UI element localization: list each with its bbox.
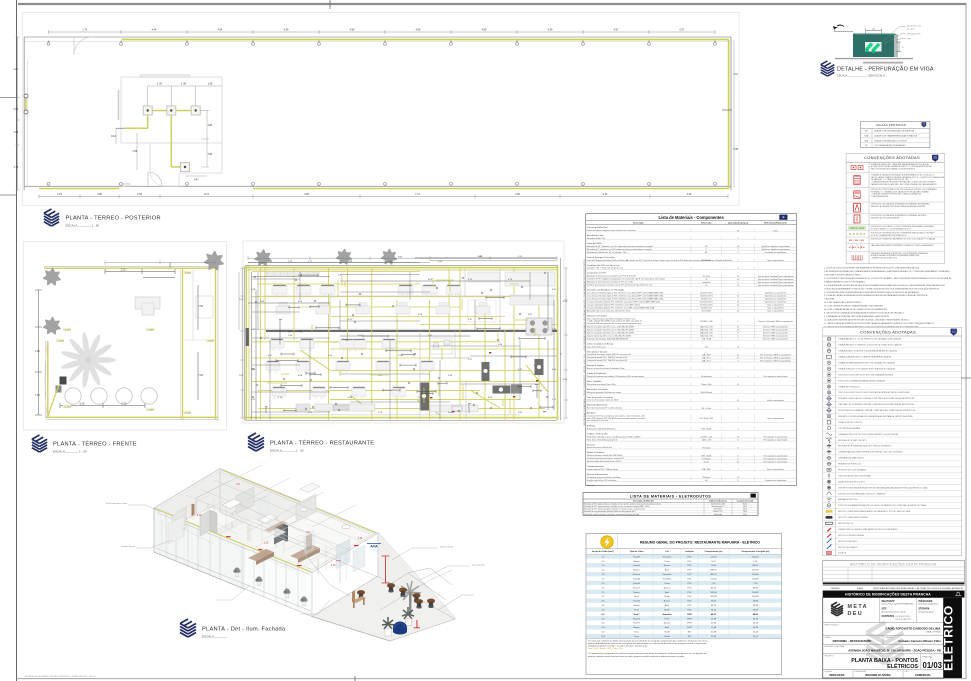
- svg-text:PLANTA - Det - Ilum. Fachada: PLANTA - Det - Ilum. Fachada: [202, 627, 286, 633]
- svg-text:Diâmetro Nominal: Diâmetro Nominal: [709, 499, 727, 502]
- svg-text:PLANTA - TÉRREO - POSTERIOR: PLANTA - TÉRREO - POSTERIOR: [66, 215, 161, 222]
- svg-text:Dispositivo DR tetrapolar 40A: Dispositivo DR tetrapolar 40A 30mA, NBR …: [587, 337, 628, 340]
- svg-text:Tomadas Industriais: Tomadas Industriais: [587, 465, 604, 468]
- svg-text:EPR: EPR: [687, 614, 692, 616]
- svg-text:Luva para eletroduto rígido de: Luva para eletroduto rígido de PVC, 25x2…: [587, 304, 640, 307]
- svg-text:DO SOLO (SOBREFORRO EM CIMA SO: DO SOLO (SOBREFORRO EM CIMA SOLO).: [871, 234, 907, 237]
- svg-text:PVC: PVC: [687, 592, 692, 594]
- svg-text:Neutro: Neutro: [633, 591, 640, 594]
- svg-text:Seção do Cabo (mm²): Seção do Cabo (mm²): [592, 550, 614, 553]
- svg-text:Adaptador de Derivação para Co: Adaptador de Derivação para Condulete de…: [587, 281, 633, 284]
- svg-text:PVC: PVC: [687, 596, 692, 598]
- svg-text:FOGÃO A: FOGÃO A: [838, 552, 847, 555]
- svg-text:21,98: 21,98: [711, 636, 717, 638]
- svg-text:PVC: PVC: [687, 587, 692, 589]
- svg-text:Arandelas: Arandelas: [587, 412, 596, 415]
- svg-text:refletor led 50w: refletor led 50w: [440, 546, 454, 549]
- svg-text:ESCALA______________ SEM ESCAL: ESCALA______________ SEM ESCALA: [837, 74, 885, 78]
- svg-text:3.10: 3.10: [518, 256, 523, 258]
- svg-text:WAGNER OLIVEIRA: WAGNER OLIVEIRA: [865, 673, 891, 677]
- svg-text:RESP. TÉCNICO: RESP. TÉCNICO: [825, 623, 840, 626]
- svg-text:1.45: 1.45: [157, 83, 162, 86]
- svg-text:Condulete de PVC múltiplo com: Condulete de PVC múltiplo com adaptações…: [587, 278, 665, 281]
- svg-text:PUXADOR DE TETO VELOSO: PUXADOR DE TETO VELOSO: [838, 421, 863, 424]
- svg-text:arandela externa: arandela externa: [121, 545, 136, 548]
- svg-text:0.97: 0.97: [680, 28, 685, 31]
- svg-text:2.84: 2.84: [448, 375, 453, 377]
- svg-text:Terra: Terra: [634, 635, 640, 638]
- svg-text:Refletor LED 50W 6500K IP66 bi: Refletor LED 50W 6500K IP66 bivolt: [587, 427, 616, 430]
- svg-text:Fase/S: Fase/S: [633, 565, 640, 567]
- svg-text:PVC: PVC: [687, 574, 692, 576]
- svg-text:Tomada industrial 2P+T 32A com: Tomada industrial 2P+T 32A com tampa: [587, 468, 618, 471]
- svg-text:Fonte driver 12V 100W para fit: Fonte driver 12V 100W para fita de led: [587, 438, 617, 441]
- svg-text:ELETRODUTO DE ALIMENTAÇÃO SUB-: ELETRODUTO DE ALIMENTAÇÃO SUB-SOLO + PAR…: [838, 492, 886, 495]
- svg-text:ELETRODUTO EMBUTIDO NA PAREDE: ELETRODUTO EMBUTIDO NA PAREDE OU TETO CO…: [871, 238, 936, 241]
- svg-text:QM: QM: [865, 140, 869, 142]
- svg-text:PLANTA - TÉRREO - RESTAURANTE: PLANTA - TÉRREO - RESTAURANTE: [270, 440, 374, 447]
- svg-text:EÁDIO TOPOVISTO CARDOSO DE LIM: EÁDIO TOPOVISTO CARDOSO DE LIMA: [886, 626, 942, 631]
- svg-text:DO SOLO (SUBSOLO + 60 CM EM BA: DO SOLO (SUBSOLO + 60 CM EM BAIXO SOLO).: [871, 228, 912, 231]
- svg-text:180,27: 180,27: [752, 565, 759, 567]
- svg-text:+0.15 N: +0.15 N: [147, 410, 154, 412]
- svg-text:CONFORME O PROJETO ARQUITETÔNI: CONFORME O PROJETO ARQUITETÔNICO;: [824, 274, 862, 277]
- svg-text:Fita isolante antichama 19mm x: Fita isolante antichama 19mm x 20m: [587, 383, 616, 386]
- svg-text:Material de Aterramento: Material de Aterramento: [587, 404, 607, 407]
- svg-text:4.00: 4.00: [552, 369, 557, 371]
- svg-text:74,80: 74,80: [711, 565, 717, 567]
- svg-text:Metadeuengenharia.com.br: Metadeuengenharia.com.br: [882, 610, 907, 613]
- svg-text:RAIO DE DISTÂNCIA NO MÁXIMO 50: RAIO DE DISTÂNCIA NO MÁXIMO 50CM ENTRE E…: [871, 168, 916, 171]
- svg-text:48,65: 48,65: [753, 613, 759, 616]
- svg-text:Neutro: Neutro: [633, 569, 640, 572]
- svg-text:341,35: 341,35: [710, 596, 717, 598]
- svg-text:4.44: 4.44: [152, 28, 157, 31]
- svg-text:ESCALA: ESCALA: [825, 670, 833, 673]
- svg-text:3.96: 3.96: [515, 193, 520, 196]
- svg-text:Sensor de presença 360 de teto: Sensor de presença 360 de teto: [587, 446, 612, 449]
- svg-text:Vermelho: Vermelho: [663, 578, 673, 581]
- svg-text:PVC: PVC: [687, 583, 692, 585]
- svg-text:STOPARK: STOPARK: [919, 608, 930, 611]
- svg-text:2.10: 2.10: [197, 515, 202, 517]
- svg-text:21,98: 21,98: [711, 632, 717, 634]
- svg-text:Branco: Branco: [664, 622, 671, 625]
- svg-text:1.11: 1.11: [552, 399, 557, 401]
- svg-text:24,18: 24,18: [753, 627, 759, 629]
- svg-text:DETETOR COM VENTO ACESA: DETETOR COM VENTO ACESA: [838, 534, 865, 537]
- svg-text:4.12: 4.12: [603, 193, 608, 196]
- svg-text:Vermelho: Vermelho: [663, 573, 673, 576]
- svg-text:+0.15 N: +0.15 N: [207, 341, 214, 343]
- svg-text:ISO: ISO: [688, 636, 692, 638]
- svg-text:+0.15 N: +0.15 N: [64, 407, 71, 409]
- svg-text:6.92: 6.92: [518, 412, 523, 414]
- svg-text:Eletroduto Flex Metálico de 3/: Eletroduto Flex Metálico de 3/4" em alum…: [587, 251, 627, 254]
- svg-text:PVC: PVC: [687, 556, 692, 558]
- svg-text:4.99: 4.99: [350, 28, 355, 31]
- svg-text:38,89: 38,89: [753, 587, 759, 589]
- svg-text:LUMINÁRIA LED EMBUTIDA WC: LUMINÁRIA LED EMBUTIDA WC: [838, 457, 865, 460]
- svg-text:24,18: 24,18: [753, 623, 759, 625]
- svg-text:Diversos: Diversos: [587, 484, 594, 487]
- svg-text:DATA: DATA: [857, 587, 863, 590]
- svg-text:CAIXA DE ÁGUA COM LUZ SOLO: CAIXA DE ÁGUA COM LUZ SOLO: [838, 480, 866, 483]
- svg-text:Plafons e Pendentes: Plafons e Pendentes: [587, 451, 605, 454]
- svg-text:Cinza: Cinza: [664, 583, 670, 585]
- svg-text:PRINCIPAIS ALTERAÇÕES REALIZAD: PRINCIPAIS ALTERAÇÕES REALIZADAS + ALTER…: [873, 587, 963, 590]
- svg-text:1.06: 1.06: [13, 131, 18, 134]
- svg-text:Fase: +10% / Neutro: +10% / Te: Fase: +10% / Neutro: +10% / Terra: +15%: [588, 647, 623, 650]
- svg-text:USO: USO: [905, 671, 909, 673]
- svg-text:1.71: 1.71: [468, 359, 473, 361]
- svg-text:506,80: 506,80: [752, 574, 759, 576]
- svg-text:Wa.me/message/XHFPYKASHLVD1: Wa.me/message/XHFPYKASHLVD1: [882, 603, 915, 606]
- svg-text:CD: CD: [865, 145, 868, 147]
- svg-text:4.94: 4.94: [218, 28, 223, 31]
- svg-text:Caixa de Passagem / Derivações: Caixa de Passagem / Derivações: [587, 256, 615, 259]
- svg-text:PONTO DE LUZ NA PAREDE ARANDEL: PONTO DE LUZ NA PAREDE ARANDELA NA ILUMI…: [838, 379, 886, 382]
- svg-text:9.74: 9.74: [204, 193, 209, 196]
- svg-text:Vermelho: Vermelho: [662, 613, 672, 616]
- svg-text:Azul: Azul: [665, 569, 670, 572]
- svg-text:DESENHISTA: DESENHISTA: [855, 670, 867, 673]
- svg-text:Curva 90 para eletroduto rígid: Curva 90 para eletroduto rígido de PVC, …: [587, 298, 664, 301]
- svg-text:H= 1.10M - INTERRUPTORES E TOM: H= 1.10M - INTERRUPTORES E TOMADAS MÉDIA…: [824, 305, 883, 308]
- svg-text:4.97: 4.97: [614, 28, 619, 31]
- svg-text:Fitas e Vedadões: Fitas e Vedadões: [587, 380, 602, 383]
- svg-text:4.05: 4.05: [428, 279, 433, 281]
- svg-text:DETETOR DE CO2: DETETOR DE CO2: [838, 523, 853, 525]
- svg-text:0.87: 0.87: [528, 314, 533, 316]
- svg-text:PVC: PVC: [687, 609, 692, 611]
- svg-text:35,35: 35,35: [711, 587, 717, 589]
- svg-text:QTA: QTA: [864, 135, 869, 138]
- svg-text:ESCALA________ 1 : 50: ESCALA________ 1 : 50: [66, 224, 100, 228]
- svg-text:Disjuntor monopolar tipo DIN,: Disjuntor monopolar tipo DIN, curva C, 2…: [587, 331, 634, 334]
- svg-text:Total *: Total *: [633, 613, 639, 616]
- svg-text:1.08: 1.08: [418, 314, 423, 316]
- svg-text:*Os valores de comprimento obt: *Os valores de comprimento obtidos nesta…: [588, 639, 707, 642]
- svg-text:Verde: Verde: [664, 608, 670, 611]
- svg-text:TOMADA DE FORÇA 220 V: TOMADA DE FORÇA 220 V: [838, 385, 861, 388]
- svg-text:Disjuntor bipolar tipo DIN, cu: Disjuntor bipolar tipo DIN, curva C, 32A…: [587, 334, 631, 337]
- svg-text:Disjuntor monopolar tipo DIN,: Disjuntor monopolar tipo DIN, curva C, 1…: [587, 325, 634, 328]
- svg-text:4.85: 4.85: [304, 193, 309, 196]
- svg-text:SIGLAS ADOTADAS: SIGLAS ADOTADAS: [876, 123, 906, 127]
- svg-text:quadros de distribuição de cad: quadros de distribuição de cada circuito…: [588, 642, 706, 645]
- svg-text:Perfil de led embutido no gess: Perfil de led embutido no gesso com difu…: [587, 435, 641, 438]
- svg-text:fita led embutida no perfil: fita led embutida no perfil: [106, 502, 128, 505]
- svg-text:Adaptador de Derivação para Co: Adaptador de Derivação para Condulete co…: [587, 275, 636, 278]
- svg-text:DETETOR COM VENTO: DETETOR COM VENTO: [838, 541, 858, 543]
- svg-text:Fase/S: Fase/S: [633, 583, 640, 585]
- svg-text:EPR: EPR: [687, 627, 692, 629]
- svg-text:PADRÃO A SER VÁLIDO ADOTADO PE: PADRÃO A SER VÁLIDO ADOTADO PELO RESPONS…: [871, 183, 938, 186]
- svg-text:PONTO DE LUZ NO CENTRO DO TETO: PONTO DE LUZ NO CENTRO DO TETO SEM LUMIN…: [838, 373, 894, 376]
- svg-text:3- OS INTERRUPTORES DEVEM SER: 3- OS INTERRUPTORES DEVEM SER INSTALADOS…: [824, 277, 952, 280]
- svg-text:Comprimento (m): Comprimento (m): [737, 499, 754, 502]
- svg-text:Branco: Branco: [664, 564, 671, 567]
- svg-text:TOMADA QUADRUPLA NO 'S' DA RED: TOMADA QUADRUPLA NO 'S' DA REDE PELA PAR…: [838, 356, 892, 359]
- svg-text:6.92: 6.92: [298, 301, 303, 303]
- svg-text:CX E SINALIZAÇÃO ILUMINAÇÃO: CX E SINALIZAÇÃO ILUMINAÇÃO: [874, 144, 906, 147]
- svg-text:ESCALA________ 1 : 50: ESCALA________ 1 : 50: [270, 449, 304, 453]
- svg-text:Cabos / Condutores de Energia: Cabos / Condutores de Energia: [587, 342, 614, 345]
- svg-text:Descrição: Descrição: [633, 221, 644, 224]
- svg-text:4.98: 4.98: [97, 193, 102, 196]
- svg-text:Cabos de PP/ISO: Cabos de PP/ISO: [587, 243, 602, 245]
- svg-text:Siemens / Schneider / WEG ou e: Siemens / Schneider / WEG ou equivalente…: [758, 320, 793, 323]
- svg-text:E-27 Bivolt / IP65: E-27 Bivolt / IP65: [700, 417, 714, 420]
- svg-text:PVC: PVC: [687, 579, 692, 581]
- svg-text:1.75: 1.75: [57, 193, 62, 196]
- svg-text:@metadeuengenharia: @metadeuengenharia: [919, 603, 940, 606]
- svg-text:Fase/T: Fase/T: [633, 587, 640, 589]
- svg-text:DETALHE - PERFURAÇÃO EM VIGA: DETALHE - PERFURAÇÃO EM VIGA: [837, 66, 934, 73]
- svg-text:Neutro: Neutro: [633, 626, 640, 629]
- svg-text:CONTATOS: CONTATOS: [882, 615, 895, 618]
- svg-text:4.99: 4.99: [482, 28, 487, 31]
- svg-text:+0.15 N: +0.15 N: [57, 341, 64, 343]
- svg-text:H= 2.20M - ARANDELAS E BRISE E: H= 2.20M - ARANDELAS E BRISE EXTERNO;: [824, 301, 862, 304]
- svg-text:7- ALTURAS:: 7- ALTURAS:: [824, 298, 835, 301]
- svg-text:Fase/T: Fase/T: [633, 623, 640, 625]
- svg-text:+55 3 99 48 7722: +55 3 99 48 7722: [895, 619, 912, 621]
- svg-text:Suportes e Acabamentos: Suportes e Acabamentos: [587, 473, 608, 476]
- svg-text:460,70: 460,70: [710, 574, 717, 576]
- svg-text:Eletroduto de 3/4", diamétrico: Eletroduto de 3/4", diamétrico, em PVC r…: [587, 245, 653, 248]
- svg-text:VENTILADOR DE TEMPERATURA E SP: VENTILADOR DE TEMPERATURA E SPOT VENTOSO…: [838, 445, 892, 448]
- svg-text:33,53: 33,53: [711, 601, 717, 603]
- svg-text:Conduletes Tipo PVC com Topo e: Conduletes Tipo PVC com Topo e Luva: [587, 264, 621, 267]
- svg-text:186,27: 186,27: [710, 570, 717, 572]
- svg-text:Eletrocalhas e Perfilados: Eletrocalhas e Perfilados: [587, 388, 608, 391]
- svg-text:Luva para eletroduto rígido de: Luva para eletroduto rígido de PVC, 25x2…: [587, 301, 660, 304]
- svg-text:PVC: PVC: [687, 570, 692, 572]
- svg-text:Colunas de Teléfon (Fio): Colunas de Teléfon (Fio): [587, 227, 608, 229]
- svg-text:Quadro de distribuição de embu: Quadro de distribuição de embutir p/ 24 …: [587, 375, 644, 378]
- svg-text:Branco: Branco: [664, 586, 671, 589]
- svg-text:0.95: 0.95: [13, 108, 18, 111]
- svg-text:INSTAGRAM: INSTAGRAM: [919, 600, 933, 603]
- svg-text:H= 0.30M - TOMADAS BAIXAS DE U: H= 0.30M - TOMADAS BAIXAS DE USO GERAL E…: [824, 308, 888, 311]
- svg-text:4.99: 4.99: [284, 28, 289, 31]
- svg-text:@stoparkprojetos: @stoparkprojetos: [919, 610, 935, 613]
- svg-text:Branco: Branco: [664, 600, 671, 603]
- svg-text:REFORMA - RESTAURANTE: REFORMA - RESTAURANTE: [833, 639, 872, 643]
- svg-text:1.45: 1.45: [328, 355, 333, 357]
- svg-text:01/03: 01/03: [922, 661, 942, 670]
- svg-text:PLAFONATO DE ILUMINAÇÃO CENTRA: PLAFONATO DE ILUMINAÇÃO CENTRAL CONECTAD…: [838, 403, 915, 406]
- svg-text:Azul: Azul: [665, 604, 670, 607]
- svg-text:CONVENÇÕES ADOTADAS: CONVENÇÕES ADOTADAS: [864, 155, 920, 160]
- svg-text:Fernado Carneiro Ribeiro Filho: Fernado Carneiro Ribeiro Filho: [898, 639, 941, 643]
- svg-text:36,88: 36,88: [753, 609, 759, 611]
- svg-text:WHATSAPP: WHATSAPP: [882, 600, 895, 603]
- svg-text:7.00: 7.00: [198, 374, 203, 377]
- svg-text:FOTOCÉLULA INTEGRADA: FOTOCÉLULA INTEGRADA: [838, 427, 861, 430]
- svg-text:PONTO DE ÁGUA COM LUZ DE BOMBA: PONTO DE ÁGUA COM LUZ DE BOMBA: [838, 474, 871, 477]
- svg-text:Fase/A: Fase/A: [633, 578, 640, 581]
- svg-text:SEGUNDO AS CÉLULAS DA SÉRIE.: SEGUNDO AS CÉLULAS DA SÉRIE.: [871, 216, 901, 219]
- svg-text:QUADRO DE TRANSFERÊNCIA AUTOMÁ: QUADRO DE TRANSFERÊNCIA AUTOMÁTICA: [874, 135, 918, 138]
- svg-text:Abraçadeira tipo D com cunha p: Abraçadeira tipo D com cunha para eletro…: [587, 310, 631, 313]
- svg-text:6: 6: [738, 321, 739, 323]
- svg-text:Cordões e Perfis de LED: Cordões e Perfis de LED: [587, 432, 609, 435]
- svg-text:Neutro: Neutro: [633, 604, 640, 607]
- svg-text:185,35: 185,35: [710, 592, 717, 594]
- svg-text:VENTILADOR DE VENTO DE TETO: VENTILADOR DE VENTO DE TETO: [838, 439, 867, 442]
- svg-text:1.68: 1.68: [208, 83, 213, 86]
- svg-text:Curva 45 para eletroduto rígid: Curva 45 para eletroduto rígido de PVC, …: [587, 295, 664, 298]
- svg-text:CONVENÇÕES ADOTADAS: CONVENÇÕES ADOTADAS: [860, 329, 916, 334]
- svg-text:ELÉTRICOS: ELÉTRICOS: [887, 662, 918, 670]
- svg-text:4.99: 4.99: [548, 28, 553, 31]
- svg-text:Verde: Verde: [664, 631, 670, 634]
- svg-text:Espelho cego 4x2 em PVC antich: Espelho cego 4x2 em PVC antichama: [587, 479, 617, 482]
- svg-text:131,75: 131,75: [710, 556, 717, 558]
- svg-text:Componentes em PVC: Componentes em PVC: [587, 272, 607, 275]
- svg-text:7: 7: [738, 418, 739, 420]
- svg-text:HISTÓRICO DE MODIFICAÇÕES DEST: HISTÓRICO DE MODIFICAÇÕES DESTA PRANCHA: [850, 561, 937, 566]
- svg-text:11- CABOS E EMENDAS SOMENTE NO: 11- CABOS E EMENDAS SOMENTE NO INTERIOR …: [824, 322, 934, 325]
- svg-text:para instalação em fachada: para instalação em fachada: [587, 419, 609, 422]
- svg-text:5.30: 5.30: [563, 379, 568, 381]
- svg-text:PONTO DE SOM AMBIENTE EMBUTIDO: PONTO DE SOM AMBIENTE EMBUTIDO NO GESSO …: [838, 504, 927, 507]
- svg-text:LUMINÁRIA TRILHO DE TETO 'SPOT: LUMINÁRIA TRILHO DE TETO 'SPOT' A SER DE…: [838, 433, 898, 436]
- svg-text:PVC: PVC: [687, 561, 692, 563]
- svg-text:Conjunto de tomada 2P+T 10A 25: Conjunto de tomada 2P+T 10A 250V com pla…: [587, 356, 627, 359]
- svg-text:Derivações com Eletrodutos em: Derivações com Eletrodutos em PVC Rígido: [587, 289, 624, 292]
- svg-text:Tampões tipo cego para Condule: Tampões tipo cego para Condulete, tipo d…: [587, 284, 652, 287]
- svg-text:Disjuntores e Proteções: Disjuntores e Proteções: [587, 315, 607, 318]
- svg-text:12- (APLICA-SE) A TODO AMBIENT: 12- (APLICA-SE) A TODO AMBIENTE FECHADO …: [824, 325, 919, 328]
- svg-text:Verde: Verde: [664, 595, 670, 598]
- svg-text:TOMADA DE ENERGIA SIMPLES PELO: TOMADA DE ENERGIA SIMPLES PELO PISO ACAB…: [838, 361, 895, 364]
- svg-text:24,18: 24,18: [753, 632, 759, 634]
- svg-text:DETETOR + SENSORES PRESENÇA AV: DETETOR + SENSORES PRESENÇA AVISO DE CAD…: [838, 510, 911, 513]
- svg-text:Term. de Pressão / Conectores: Term. de Pressão / Conectores: [587, 396, 613, 399]
- svg-text:Conjunto de Interruptor simple: Conjunto de Interruptor simples 10A 250V…: [587, 353, 631, 356]
- svg-text:204,90: 204,90: [752, 570, 759, 572]
- svg-text:Tigre ou equivalentes: Tigre ou equivalentes: [767, 417, 784, 420]
- svg-text:Lista de Materiais - Component: Lista de Materiais - Componentes: [658, 215, 724, 220]
- svg-text:4.99: 4.99: [416, 28, 421, 31]
- svg-text:Fixações e Suportes: Fixações e Suportes: [587, 364, 604, 367]
- svg-text:+0.15 N: +0.15 N: [184, 273, 191, 275]
- svg-text:1.48: 1.48: [181, 83, 186, 86]
- svg-text:QD: QD: [865, 131, 869, 133]
- svg-text:24,18: 24,18: [753, 618, 759, 620]
- svg-text:SITE: SITE: [882, 609, 888, 611]
- svg-text:Azul: Azul: [665, 626, 670, 629]
- svg-text:eletroduto PVC: eletroduto PVC: [907, 33, 921, 36]
- svg-text:EPR: EPR: [687, 623, 692, 625]
- svg-text:Cor: Cor: [665, 551, 669, 553]
- svg-text:21,98: 21,98: [711, 623, 717, 625]
- svg-text:2.10: 2.10: [331, 565, 336, 567]
- svg-text:+ PAINÉIS DE LED DE ALTO IPX.: + PAINÉIS DE LED DE ALTO IPX.: [871, 257, 898, 260]
- svg-text:7.65: 7.65: [198, 305, 203, 308]
- svg-text:203,89: 203,89: [752, 596, 759, 598]
- svg-text:quadros; somente material lice: quadros; somente material licenciado dev…: [588, 655, 685, 658]
- svg-text:PENDENTE: PÉRGOLAS DE LUZ ACES: PENDENTE: PÉRGOLAS DE LUZ ACESA, CONECTA…: [838, 397, 915, 400]
- svg-text:HISTÓRICO DE MODIFICAÇÕES DEST: HISTÓRICO DE MODIFICAÇÕES DESTA PRANCHA: [845, 592, 931, 597]
- svg-text:ISO: ISO: [688, 632, 692, 634]
- svg-text:QUADRÍCULAS DE CARGA E SINALIZ: QUADRÍCULAS DE CARGA E SINALIZAÇÃO DE CI…: [838, 528, 899, 531]
- svg-text:Eletroduto de 1", diamétrico,: Eletroduto de 1", diamétrico, em PVC ríg…: [587, 248, 651, 251]
- svg-text:VERSÃO: VERSÃO: [830, 587, 839, 590]
- svg-text:Curva 90 para eletroduto rígid: Curva 90 para eletroduto rígido de PVC, …: [587, 292, 664, 295]
- svg-text:CONECTADAS A ELE.: CONECTADAS A ELE.: [871, 195, 889, 198]
- svg-text:TOMADA MÉDIA NO 'S' DA REDE 1.: TOMADA MÉDIA NO 'S' DA REDE 1.10 M DO PI…: [838, 344, 902, 347]
- svg-text:5.70: 5.70: [122, 403, 127, 406]
- svg-text:5- CONFERIR EM OBRA TODAS AS M: 5- CONFERIR EM OBRA TODAS AS MEDIDAS E N…: [824, 291, 920, 294]
- svg-text:CREA - Nº77160: CREA - Nº77160: [926, 631, 942, 634]
- svg-text:PVC: PVC: [687, 601, 692, 603]
- svg-text:Isolação: Isolação: [685, 550, 694, 553]
- svg-text:Neutro: Neutro: [633, 560, 640, 563]
- svg-text:36,88: 36,88: [753, 601, 759, 603]
- svg-text:DETETOR + SENSORES DE NÉVOA: DETETOR + SENSORES DE NÉVOA: [838, 516, 868, 519]
- svg-text:Eletroduto de Cabo: Eletroduto de Cabo: [587, 234, 603, 237]
- svg-text:Preto: Preto: [665, 560, 671, 563]
- svg-text:PLANTA BAIXA - PONTOS: PLANTA BAIXA - PONTOS: [851, 658, 918, 664]
- svg-text:3.07: 3.07: [268, 355, 273, 357]
- svg-text:134,80: 134,80: [752, 579, 759, 581]
- svg-text:ELÉTRICO: ELÉTRICO: [941, 605, 956, 671]
- svg-text:PVC: PVC: [687, 605, 692, 607]
- svg-text:CABO NÃO-ENERGIZADO ESPERANDO: CABO NÃO-ENERGIZADO ESPERANDO LIGAÇÃO FU…: [871, 244, 935, 247]
- svg-text:21,98: 21,98: [711, 618, 717, 620]
- svg-text:0.98: 0.98: [298, 375, 303, 377]
- svg-text:1.98: 1.98: [137, 193, 142, 196]
- svg-text:40: 40: [872, 28, 875, 30]
- svg-text:Terra: Terra: [634, 595, 640, 598]
- svg-text:DETETOR NOS DADOS: DETETOR NOS DADOS: [838, 546, 858, 549]
- svg-text:TOMADA BAIXA NO 'S' - 30 CM TÉ: TOMADA BAIXA NO 'S' - 30 CM TÉRREO DO PI…: [838, 338, 902, 341]
- svg-text:Terra: Terra: [634, 631, 640, 634]
- svg-text:1.50: 1.50: [207, 153, 212, 156]
- svg-text:Comprimento Corrigido (m): Comprimento Corrigido (m): [741, 550, 769, 553]
- svg-text:145,00: 145,00: [752, 556, 759, 558]
- svg-text:1.35: 1.35: [288, 335, 293, 337]
- svg-text:1.87: 1.87: [13, 68, 18, 71]
- svg-text:poste balizador: poste balizador: [472, 564, 485, 567]
- svg-text:1.58: 1.58: [132, 150, 137, 153]
- svg-text:1.10: 1.10: [264, 543, 269, 545]
- svg-text:+0.15 N: +0.15 N: [184, 413, 191, 415]
- svg-text:Disjuntor monopolar tipo DIN,: Disjuntor monopolar tipo DIN, curva C, 1…: [587, 328, 634, 331]
- svg-text:Preto: Preto: [665, 617, 671, 620]
- svg-text:Comprimento (m): Comprimento (m): [705, 550, 723, 553]
- svg-text:2.37: 2.37: [251, 399, 256, 401]
- svg-text:furo Ø máx. 1/3: furo Ø máx. 1/3: [907, 26, 922, 28]
- svg-text:1.06: 1.06: [260, 301, 265, 303]
- svg-text:44,27: 44,27: [711, 613, 717, 616]
- svg-text:CLIENTE: CLIENTE: [885, 637, 894, 639]
- svg-text:PVC: PVC: [687, 565, 692, 567]
- svg-text:2.20: 2.20: [121, 269, 126, 272]
- svg-text:EPR: EPR: [687, 618, 692, 620]
- svg-text:10- QUALQUER DIVERGÊNCIA ENTRE: 10- QUALQUER DIVERGÊNCIA ENTRE PROJETO E…: [824, 318, 910, 321]
- svg-text:ESCALA________: ESCALA________: [202, 635, 228, 639]
- svg-text:Condulete, Tipo 'C' Saída com: Condulete, Tipo 'C' Saída com Tampa de L…: [587, 267, 623, 270]
- svg-text:ENDEREÇO DA OBRA: ENDEREÇO DA OBRA: [825, 645, 845, 648]
- svg-text:TOMADA DUPLA NO 'S' DE CAIXA D: TOMADA DUPLA NO 'S' DE CAIXA DE PISO PEL…: [838, 367, 895, 370]
- svg-text:9- LUMINÁRIAS DECORATIVAS: VER: 9- LUMINÁRIAS DECORATIVAS: VER LISTA DE …: [824, 315, 890, 318]
